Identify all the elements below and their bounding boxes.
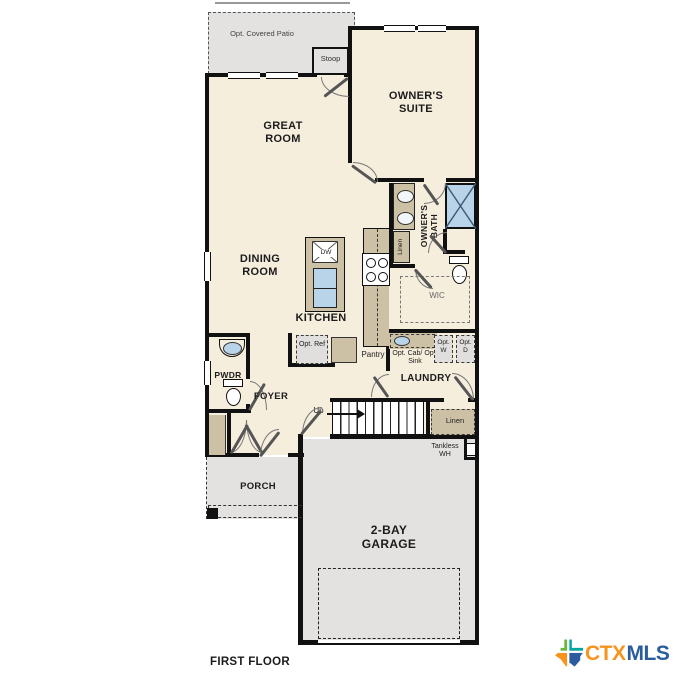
- pwdr-label: PWDR: [206, 370, 250, 380]
- logo-ctx: CTX: [585, 642, 626, 666]
- floor-title: FIRST FLOOR: [210, 656, 320, 670]
- dining-room-label: DINING ROOM: [225, 253, 295, 279]
- opt-ref: [296, 335, 328, 364]
- opt-dryer-label: Opt. D: [457, 339, 474, 354]
- dishwasher: DW: [312, 241, 338, 263]
- foyer-label: FOYER: [248, 391, 294, 402]
- opt-sink: [394, 336, 410, 346]
- opt-ref-label: Opt. Ref: [298, 341, 326, 349]
- window: [384, 25, 415, 32]
- kitchen-label: KITCHEN: [291, 312, 351, 325]
- patio-roof-line: [215, 2, 350, 4]
- staircase: [332, 402, 424, 434]
- logo-mls: MLS: [627, 642, 670, 666]
- dishwasher-label: DW: [317, 249, 335, 257]
- window: [204, 252, 211, 281]
- range: [362, 253, 390, 286]
- wall: [205, 73, 317, 77]
- patio-label: Opt. Covered Patio: [222, 30, 302, 39]
- window: [418, 25, 446, 32]
- window: [266, 72, 298, 79]
- up-arrow-head: [357, 409, 365, 419]
- texas-icon: [554, 638, 584, 669]
- wall: [298, 434, 303, 645]
- pantry-label: Pantry: [357, 350, 389, 359]
- wic-label: WIC: [424, 291, 450, 300]
- hall-linen-label: Linen: [438, 417, 472, 426]
- porch-label: PORCH: [228, 481, 288, 492]
- island-sink: [313, 268, 337, 308]
- kitchen-counter: [363, 228, 389, 347]
- wall: [475, 26, 479, 645]
- garage-door-line: [318, 643, 460, 644]
- opt-cab-sink-label: Opt. Cab/ Opt. Sink: [391, 350, 439, 367]
- owners-suite-label: OWNER'S SUITE: [379, 90, 453, 116]
- bath-vanity: [393, 183, 415, 230]
- shower: [445, 183, 476, 229]
- wall: [288, 333, 292, 367]
- opt-washer-label: Opt. W: [435, 339, 452, 354]
- floor-plan: DW Linen OWNER'S BATH WIC Opt. Cab/ Opt.…: [0, 0, 687, 687]
- tankless-label: Tankless WH: [426, 443, 464, 460]
- toilet: [223, 379, 243, 387]
- bath-linen-label: Linen: [397, 233, 405, 261]
- porch-column: [207, 508, 218, 519]
- porch-step: [208, 505, 302, 518]
- stoop-label: Stoop: [314, 55, 347, 64]
- toilet: [449, 256, 469, 264]
- wall: [426, 402, 430, 436]
- great-room-label: GREAT ROOM: [248, 120, 318, 146]
- pantry-shelf: [331, 337, 357, 363]
- garage-door-path: [318, 568, 460, 639]
- wall: [446, 178, 477, 182]
- wall: [464, 457, 478, 460]
- tankless-wh-unit: [466, 443, 476, 456]
- wall: [205, 333, 250, 337]
- wall: [348, 26, 352, 77]
- window: [228, 72, 260, 79]
- foyer-closet: [209, 415, 226, 455]
- ctxmls-logo: CTXMLS: [554, 638, 669, 669]
- laundry-label: LAUNDRY: [394, 373, 458, 385]
- up-arrow: [327, 413, 359, 415]
- wall: [389, 264, 415, 268]
- garage-label: 2-BAY GARAGE: [348, 523, 430, 551]
- wall: [388, 178, 424, 182]
